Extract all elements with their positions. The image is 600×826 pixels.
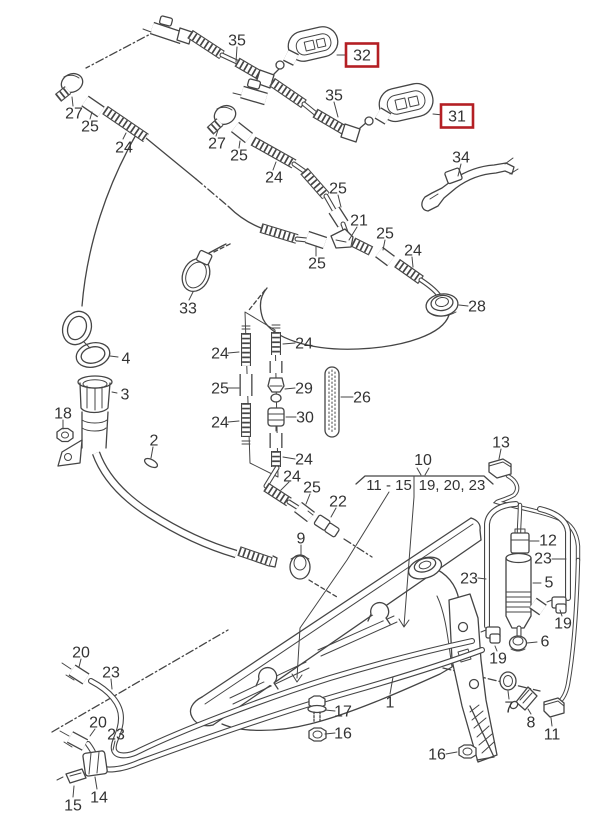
part-callout-17: 17: [334, 704, 352, 721]
hose-connector-20-lower: [60, 731, 85, 747]
part-callout-19: 19: [554, 616, 572, 633]
hose-kit-right-column: [268, 325, 284, 467]
part-callout-24: 24: [211, 415, 229, 432]
part-callout-32-highlighted[interactable]: 32: [353, 48, 371, 65]
part-callout-35: 35: [228, 33, 246, 50]
bolt-17: [308, 696, 326, 722]
part-callout-35: 35: [325, 88, 343, 105]
hose-holder-14: [83, 751, 108, 777]
part-callout-28: 28: [468, 299, 486, 316]
part-callout-19: 19: [489, 651, 507, 668]
connector-11: [544, 698, 564, 717]
foam-sleeve-26: [325, 367, 339, 437]
part-callout-31-highlighted[interactable]: 31: [448, 109, 466, 126]
connector-13: [489, 459, 511, 478]
nut-16-center: [309, 728, 326, 741]
hex-nut-18: [57, 429, 73, 442]
elbow-connector-19-right: [547, 597, 566, 613]
hose-clip-lower: [256, 668, 278, 689]
connector-12: [511, 529, 529, 553]
connector-22: [308, 511, 340, 537]
part-callout-15: 15: [64, 798, 82, 815]
part-callout-23: 23: [534, 551, 552, 568]
part-callout-25: 25: [81, 119, 99, 136]
part-callout-24: 24: [265, 170, 283, 187]
hose-connector-27-left: [58, 70, 86, 98]
part-callout-16: 16: [428, 747, 446, 764]
part-callout-13: 13: [492, 435, 510, 452]
part-callout-25: 25: [211, 381, 229, 398]
part-callout-12: 12: [539, 533, 557, 550]
part-callout-20: 20: [72, 645, 90, 662]
hose-kit-panel: [242, 312, 339, 477]
part-callout-23: 23: [107, 727, 125, 744]
part-callout-24: 24: [295, 336, 313, 353]
connector-30: [268, 408, 284, 431]
group-10-number: 10: [414, 452, 432, 469]
grommet-6: [510, 636, 527, 651]
hose-kit-left-column: [242, 326, 250, 444]
part-callout-6: 6: [541, 634, 550, 651]
y-connector-21-run: [261, 228, 459, 318]
part-callout-18: 18: [54, 406, 72, 423]
part-callout-16: 16: [334, 726, 352, 743]
part-callout-8: 8: [527, 715, 536, 732]
part-callout-11: 11: [544, 727, 561, 744]
part-callout-2: 2: [150, 433, 159, 450]
group-10-left-range: 11 - 15: [366, 477, 412, 494]
part-callout-23: 23: [460, 571, 478, 588]
filler-cap-4: [58, 307, 113, 371]
group-10-right-range: 19, 20, 23: [419, 477, 486, 494]
elbow-connector-19-left: [481, 627, 500, 643]
cable-tie-33: [177, 244, 226, 296]
part-callout-29: 29: [295, 381, 313, 398]
spray-nozzle-32: [285, 24, 340, 64]
part-callout-4: 4: [122, 351, 131, 368]
part-callout-24: 24: [115, 140, 133, 157]
part-callout-27: 27: [208, 136, 226, 153]
part-callout-14: 14: [90, 790, 108, 807]
part-callout-24: 24: [295, 452, 313, 469]
part-callout-25: 25: [308, 256, 326, 273]
grommet-7: [500, 672, 516, 690]
hose-connector-27-right: [210, 102, 239, 131]
nut-16-right: [459, 745, 476, 758]
part-callout-33: 33: [179, 301, 197, 318]
part-callout-25: 25: [230, 148, 248, 165]
washer-hose-run-left: [57, 641, 482, 783]
part-callout-7: 7: [505, 700, 514, 717]
part-callout-5: 5: [545, 575, 554, 592]
nozzle-elbow-right: [341, 117, 373, 142]
grommet-28: [425, 292, 460, 318]
part-callout-9: 9: [297, 531, 306, 548]
part-callout-20: 20: [89, 715, 107, 732]
part-callout-24: 24: [283, 469, 301, 486]
part-callout-34: 34: [452, 150, 470, 167]
part-callout-21: 21: [350, 213, 368, 230]
part-callout-23: 23: [102, 665, 120, 682]
bracket-34: [422, 158, 518, 211]
parts-diagram-canvas: 10 11 - 15 19, 20, 23: [0, 0, 600, 826]
nozzle-hose-chain-left: [58, 16, 341, 138]
part-callout-24: 24: [404, 243, 422, 260]
part-callout-25: 25: [329, 181, 347, 198]
part-callout-3: 3: [121, 387, 130, 404]
part-callout-1: 1: [386, 695, 395, 712]
part-callout-25: 25: [303, 480, 321, 497]
part-callout-22: 22: [329, 494, 347, 511]
grommet-9: [290, 555, 310, 579]
filler-strainer-3: [78, 376, 112, 413]
hose-elbow-holder-left: [143, 16, 192, 44]
part-callout-26: 26: [353, 390, 371, 407]
connector-29: [268, 378, 284, 402]
part-callout-30: 30: [296, 410, 314, 427]
part-callout-24: 24: [211, 346, 229, 363]
part-callout-25: 25: [376, 226, 394, 243]
spray-nozzle-31: [376, 80, 436, 124]
hose-connector-20-upper: [62, 663, 86, 680]
hose-clip-upper: [368, 603, 390, 624]
filler-tube-2: [96, 453, 277, 567]
retaining-clip-15: [57, 769, 86, 783]
